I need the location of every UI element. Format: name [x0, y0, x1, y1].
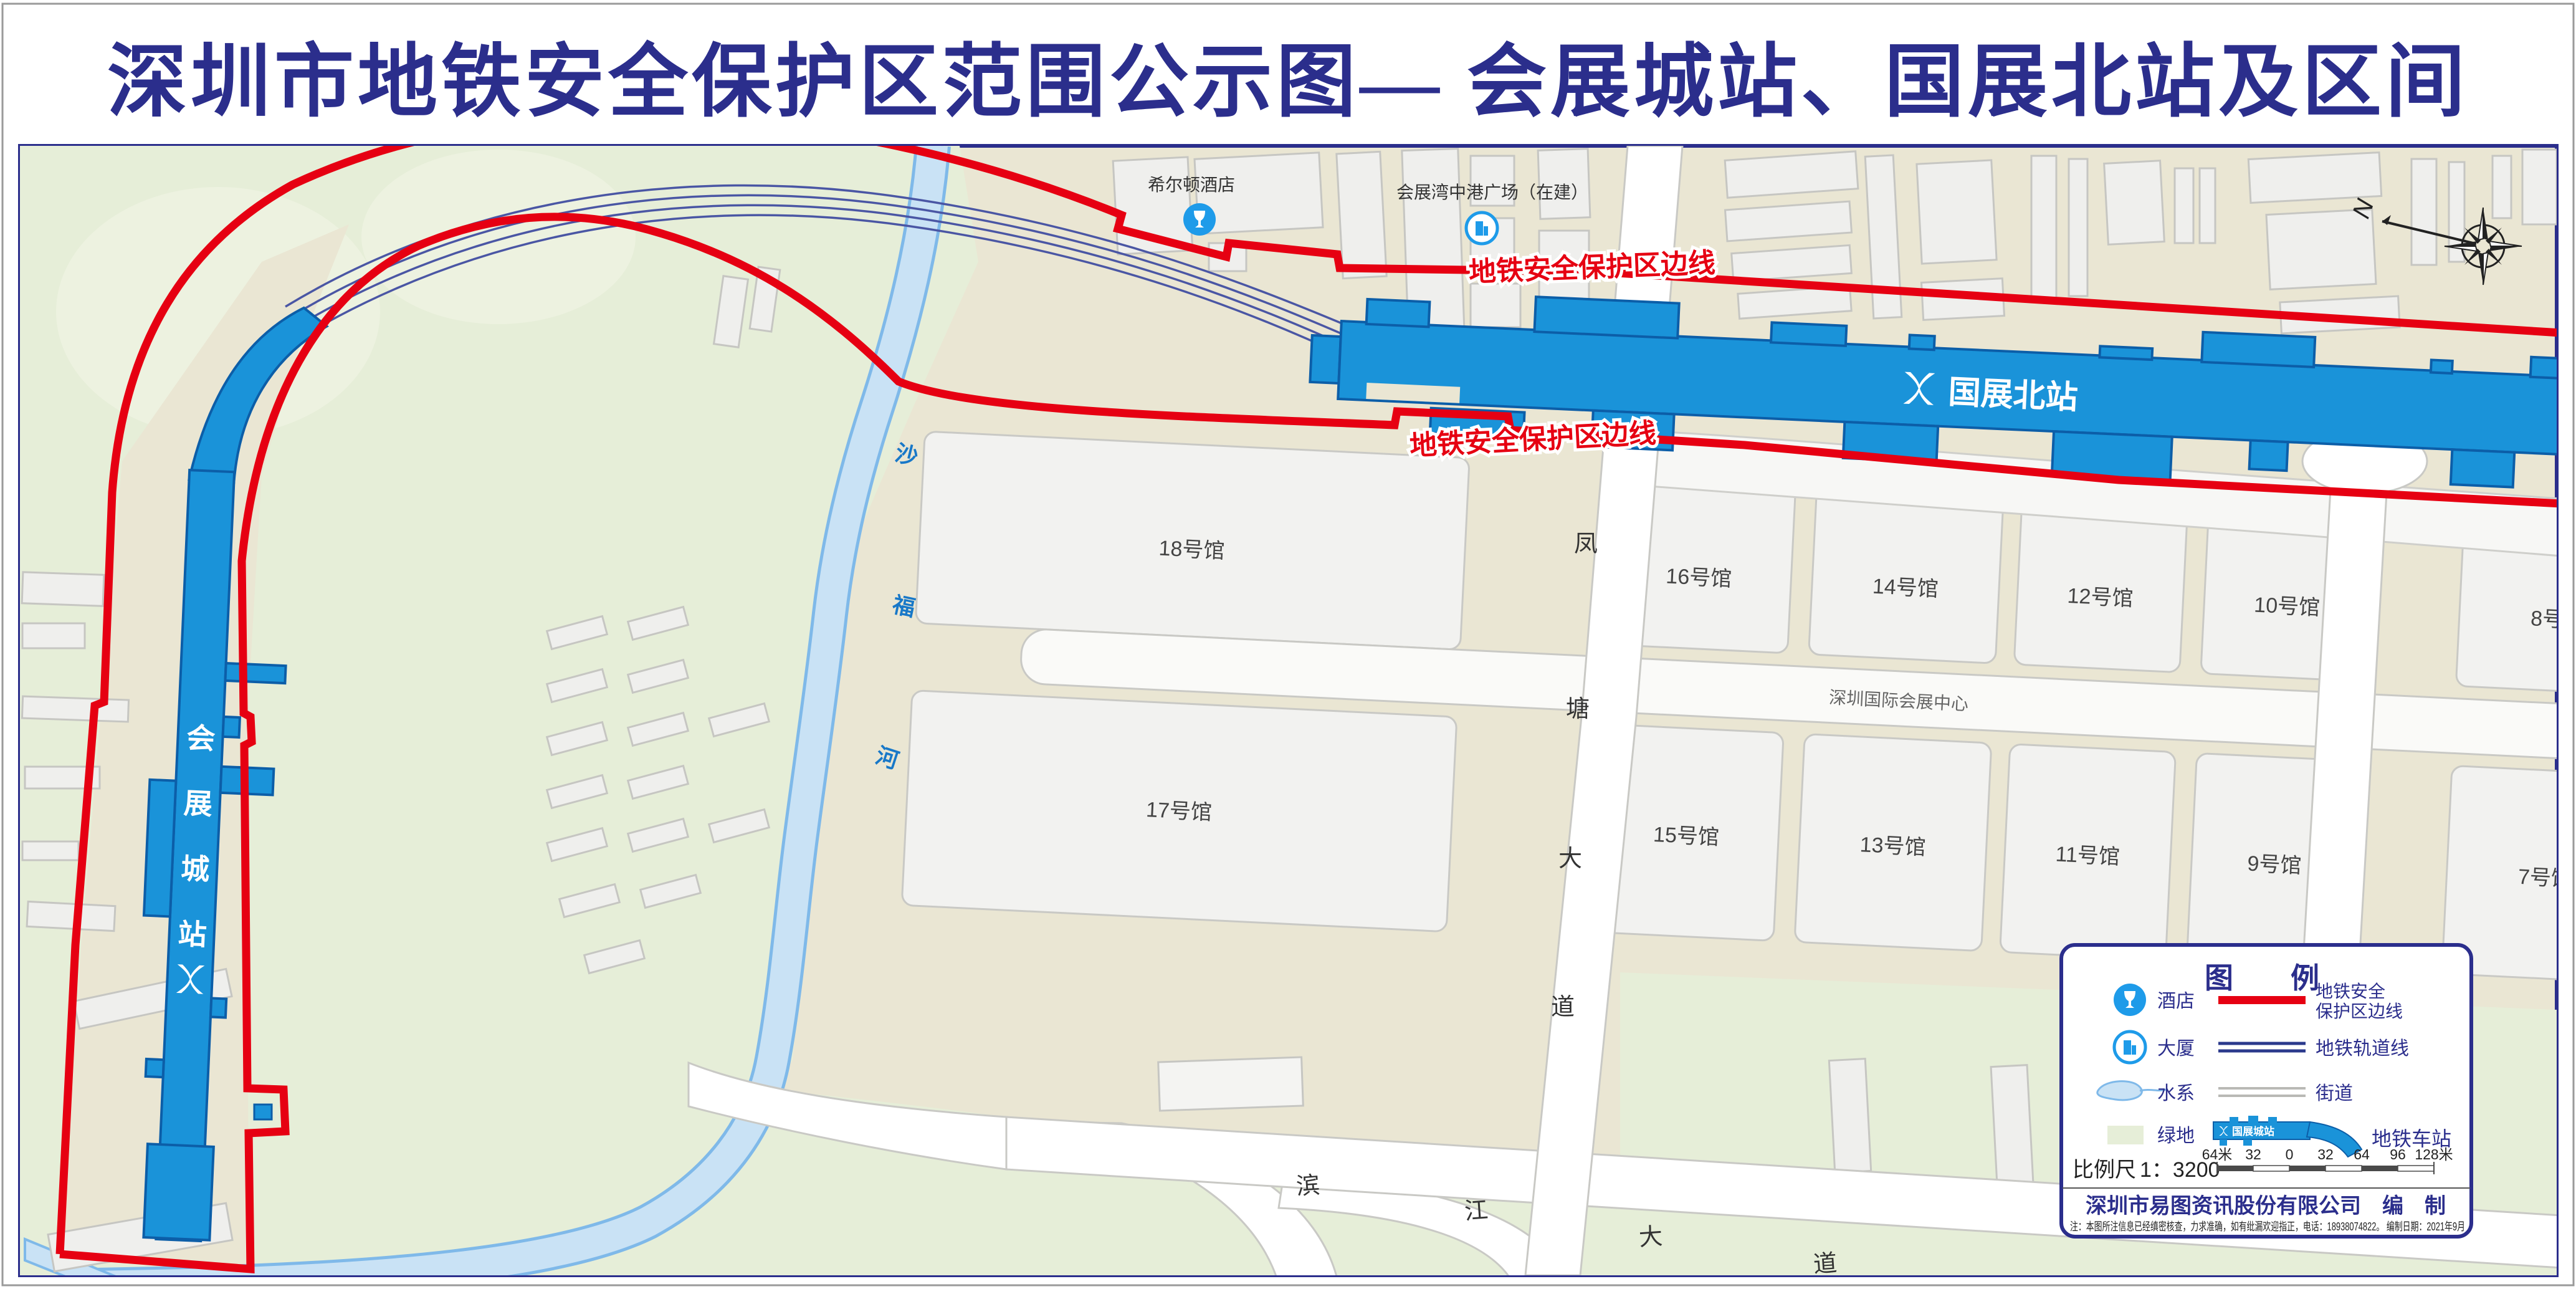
note: 注：本图所注信息已经缜密核查，力求准确，如有纰漏欢迎指正，电话：18938074…	[2070, 1220, 2465, 1233]
legend-label-green: 绿地	[2157, 1126, 2195, 1146]
hall-label: 14号馆	[1872, 575, 1939, 601]
scale-tick: 128米	[2415, 1146, 2453, 1162]
road-label-char: 大	[1558, 846, 1582, 872]
hall-label: 10号馆	[2253, 593, 2321, 620]
scale-tick: 0	[2286, 1146, 2294, 1162]
legend-label-water: 水系	[2157, 1083, 2195, 1104]
station-label-guozhanbei: 国展北站	[1947, 374, 2078, 416]
road-label-char: 江	[1464, 1197, 1489, 1225]
page-title: 深圳市地铁安全保护区范围公示图— 会展城站、国展北站及区间	[107, 38, 2469, 127]
legend-title: 图 例	[2205, 962, 2319, 994]
scale-tick: 32	[2245, 1146, 2261, 1162]
hall-label: 18号馆	[1158, 537, 1226, 563]
legend-label-street: 街道	[2316, 1083, 2353, 1104]
road-label-char: 道	[1813, 1250, 1838, 1278]
hall-label: 15号馆	[1653, 823, 1720, 850]
hotel-icon	[2114, 984, 2146, 1016]
station-label-char: 站	[178, 918, 208, 951]
hall-label: 13号馆	[1859, 833, 1927, 860]
hall-label: 17号馆	[1145, 798, 1213, 825]
scale-label: 比例尺	[2073, 1158, 2136, 1182]
station-label-char: 展	[183, 787, 213, 820]
building-icon	[2114, 1032, 2145, 1063]
legend-label-hotel: 酒店	[2157, 991, 2195, 1012]
legend-label-building: 大厦	[2157, 1038, 2195, 1059]
hall-label: 16号馆	[1666, 564, 1733, 591]
legend-label-rail: 地铁轨道线	[2316, 1038, 2409, 1059]
station-label-char: 会	[186, 721, 216, 755]
poi-label: 希尔顿酒店	[1148, 175, 1235, 194]
road-label-char: 大	[1638, 1224, 1664, 1252]
hall-label: 11号馆	[2055, 842, 2120, 869]
scale-tick: 64米	[2202, 1146, 2233, 1162]
legend-box: 图 例 酒店 地铁安全 保护区边线 大厦 地铁轨道线 水系 街道 绿地	[2061, 945, 2471, 1237]
road-label-char: 滨	[1295, 1172, 1321, 1200]
scale-tick: 64	[2354, 1146, 2370, 1162]
road-label-char: 塘	[1566, 696, 1590, 722]
road-label-char: 道	[1551, 994, 1575, 1020]
legend-label-boundary-1: 地铁安全	[2316, 982, 2385, 1001]
hotel-icon	[1183, 203, 1216, 236]
hall-label: 9号馆	[2247, 852, 2302, 878]
green-swatch	[2107, 1126, 2144, 1144]
road-label-char: 凤	[1574, 531, 1598, 557]
map-canvas: 深圳市地铁安全保护区范围公示图— 会展城站、国展北站及区间	[0, 0, 2576, 1289]
red-line-sample	[2218, 996, 2306, 1004]
station-annex	[254, 1105, 272, 1119]
publisher: 深圳市易图资讯股份有限公司 编 制	[2086, 1194, 2446, 1218]
station-label-char: 城	[180, 852, 210, 886]
station-sample-text: 国展城站	[2232, 1125, 2274, 1138]
building-icon	[1466, 213, 1497, 244]
scale-tick: 96	[2390, 1146, 2406, 1162]
poi-label: 会展湾中港广场（在建）	[1396, 183, 1588, 202]
hall-label: 12号馆	[2067, 584, 2134, 611]
legend-label-boundary-2: 保护区边线	[2316, 1002, 2403, 1021]
scale-tick: 32	[2317, 1146, 2334, 1162]
public-notice-map-page: 深圳市地铁安全保护区范围公示图— 会展城站、国展北站及区间	[0, 0, 2576, 1289]
